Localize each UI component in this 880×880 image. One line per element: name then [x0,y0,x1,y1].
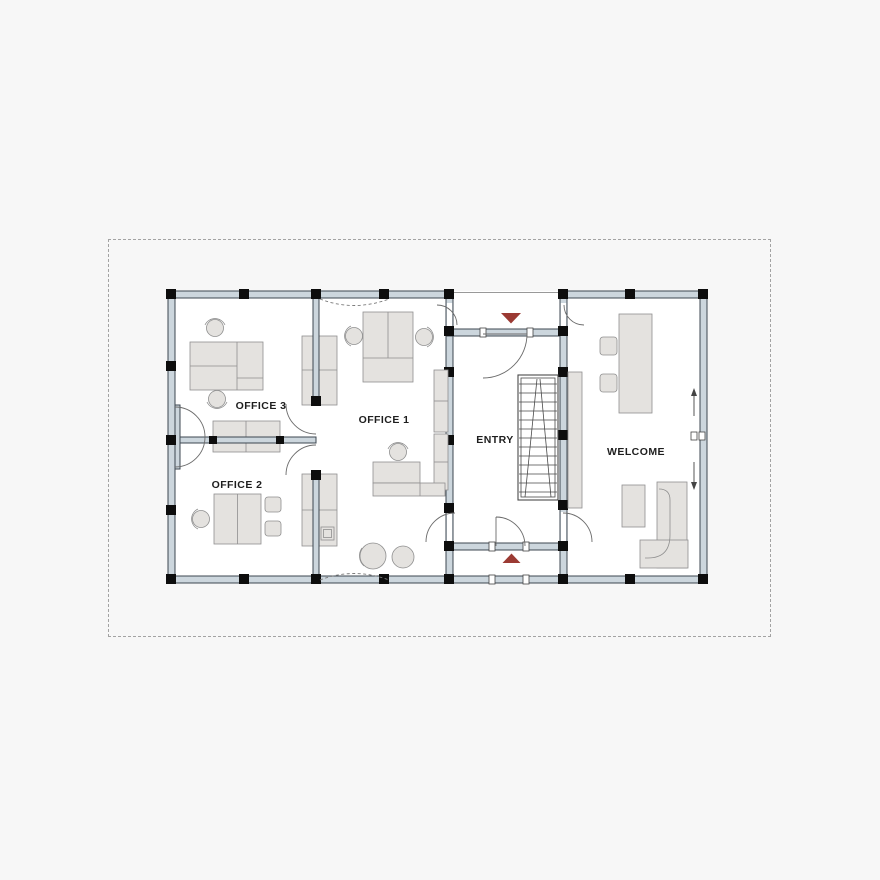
welcome-chair-1 [600,337,617,355]
wall-entry-bottom [446,543,567,550]
wall-bottom-left-block [168,576,453,583]
office1-l-desk [373,462,420,483]
office2-guest-chair-1 [265,497,281,512]
welcome-chair-2 [600,374,617,392]
coffee-table [622,485,645,527]
office1-desk-chair [390,444,407,461]
wall-top-left-block [168,291,453,298]
sink-unit [321,527,334,540]
wall-entry-top [446,329,567,336]
partition-horizontal [175,437,316,443]
room-label-office-3: OFFICE 3 [236,400,287,412]
office2-desk-chair [193,511,210,528]
partition-vertical-lower [313,472,319,576]
sofa-horizontal [640,540,688,568]
room-label-entry: ENTRY [476,434,513,446]
room-label-office-2: OFFICE 2 [212,479,263,491]
lounge-chair-2 [392,546,414,568]
wall-bottom-porch [446,576,567,583]
welcome-wall-cabinet [568,372,582,508]
office3-chair-top [207,320,224,337]
partition-vertical-upper [313,298,319,404]
office1-chair-left [346,328,363,345]
reception-desk [619,314,652,413]
office1-chair-right [416,329,433,346]
floor-plan-canvas: OFFICE 3 OFFICE 2 OFFICE 1 ENTRY WELCOME [0,0,880,880]
office1-l-desk-return [373,483,445,496]
room-label-welcome: WELCOME [607,446,665,458]
floor-plan-drawing [0,0,880,880]
lounge-chair-1 [360,543,386,569]
room-label-office-1: OFFICE 1 [359,414,410,426]
office3-chair-bottom [209,391,226,408]
office2-guest-chair-2 [265,521,281,536]
staircase [518,375,558,500]
